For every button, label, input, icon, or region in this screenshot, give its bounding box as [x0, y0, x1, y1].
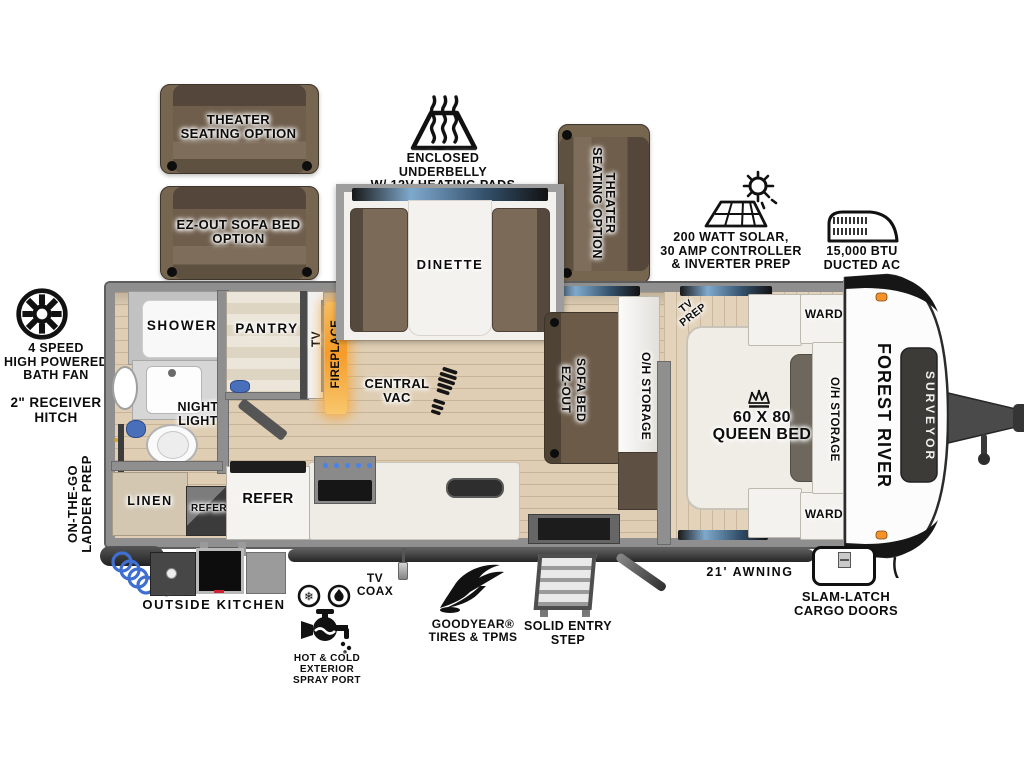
bedroom-divider-wall: [658, 362, 670, 544]
refrigerator-top: [230, 461, 306, 473]
tongue-jack: [981, 434, 987, 456]
goodyear-label: GOODYEAR® TIRES & TPMS: [424, 618, 522, 644]
oh-storage-living-label: O/H STORAGE: [626, 328, 652, 464]
bath-fan-icon: [14, 286, 70, 342]
toilet-seat: [157, 431, 189, 459]
ladder-prep-callout: ON-THE-GO LADDER PREP: [66, 455, 94, 553]
entry-step-icon: [534, 554, 597, 610]
tv-label-wrap: TV: [307, 316, 325, 362]
theater-seating-right-label-wrap: THEATER SEATING OPTION: [585, 128, 621, 278]
goodyear-wingfoot-icon: [436, 562, 508, 616]
ac-icon: [822, 204, 902, 246]
pantry-base: [226, 393, 308, 399]
ez-out-sofa-bed-option-label: EZ-OUT SOFA BED OPTION: [160, 218, 317, 246]
dinette-bench: [350, 208, 408, 332]
cargo-doors-label: SLAM-LATCH CARGO DOORS: [786, 590, 906, 618]
blue-towel: [126, 420, 146, 438]
coax-connector-icon: [398, 562, 408, 580]
entry-step-label: SOLID ENTRY STEP: [520, 620, 616, 647]
stove-burners: [318, 459, 372, 468]
dinette-bench: [492, 208, 550, 332]
pantry-label: PANTRY: [224, 322, 310, 337]
cargo-door-latch: [838, 552, 851, 568]
blue-towel: [230, 380, 250, 393]
ladder-prep-wrap: ON-THE-GO LADDER PREP: [62, 442, 98, 566]
bathroom-mirror: [112, 366, 138, 410]
spray-port-label: HOT & COLD EXTERIOR SPRAY PORT: [266, 654, 388, 686]
bathroom-wall: [112, 462, 222, 470]
outside-kitchen-label: OUTSIDE KITCHEN: [138, 598, 290, 612]
solar-callout: 200 WATT SOLAR, 30 AMP CONTROLLER & INVE…: [655, 231, 807, 272]
brand-model: SURVEYOR: [904, 352, 936, 482]
solar-icon: [698, 170, 786, 232]
step-foot: [582, 610, 590, 617]
tv-wall-frame: [300, 291, 307, 399]
griddle-detail: [214, 590, 224, 593]
towel-hook: [114, 438, 118, 442]
heating-pads-icon: [404, 86, 484, 152]
central-vac-label: CENTRAL VAC: [360, 377, 434, 405]
power-cord: [894, 557, 903, 578]
dinette-label: DINETTE: [402, 258, 498, 272]
stove-front: [318, 480, 372, 501]
floorplan-diagram: THEATER SEATING OPTION EZ-OUT SOFA BED O…: [0, 0, 1024, 768]
crown-icon: [744, 388, 774, 410]
theater-seating-option-label: THEATER SEATING OPTION: [160, 113, 317, 141]
awning-label: 21' AWNING: [700, 566, 800, 580]
receiver-hitch-callout: 2" RECEIVER HITCH: [0, 396, 112, 425]
outside-kitchen-griddle: [196, 548, 244, 594]
queen-bed-label: 60 X 80 QUEEN BED: [700, 409, 824, 444]
theater-seating-right-label: THEATER SEATING OPTION: [590, 147, 617, 259]
tv-label: TV: [310, 331, 323, 347]
lower-cabinet: [618, 452, 662, 510]
nightstand: [748, 488, 802, 538]
linen-label: LINEN: [110, 495, 190, 509]
step-foot: [540, 610, 548, 617]
outside-kitchen-panel: [246, 552, 286, 594]
sofa-bed-label: EZ-OUT SOFA BED: [558, 342, 602, 438]
spray-port-icon: ❄: [294, 584, 360, 654]
outside-kitchen-knob: [166, 568, 177, 579]
kitchen-sink: [446, 478, 504, 498]
sink-faucet: [168, 369, 176, 377]
hitch-coupler: [1013, 404, 1024, 432]
refer-label: REFER: [224, 492, 312, 508]
brand-make: FOREST RIVER: [869, 330, 893, 502]
svg-text:❄: ❄: [304, 590, 314, 604]
bath-fan-callout: 4 SPEED HIGH POWERED BATH FAN: [0, 342, 112, 383]
nightstand: [748, 294, 802, 346]
entry-mat: [538, 518, 610, 540]
